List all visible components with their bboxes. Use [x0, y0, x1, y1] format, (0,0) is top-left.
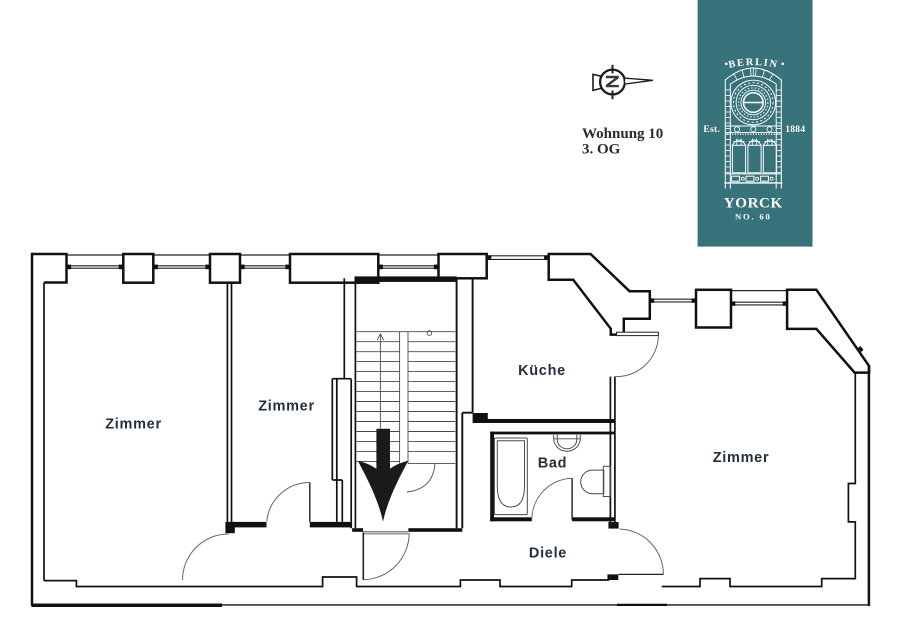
svg-text:Zimmer: Zimmer — [258, 399, 315, 415]
svg-text:3. OG: 3. OG — [582, 141, 621, 157]
svg-text:Est.: Est. — [703, 125, 720, 135]
svg-text:YORCK: YORCK — [724, 196, 783, 212]
svg-text:Zimmer: Zimmer — [105, 417, 162, 433]
svg-text:1884: 1884 — [785, 125, 805, 135]
svg-text:NO. 60: NO. 60 — [735, 212, 772, 222]
svg-text:Bad: Bad — [538, 456, 568, 472]
svg-text:Zimmer: Zimmer — [713, 450, 770, 466]
svg-text:Diele: Diele — [529, 546, 567, 562]
svg-text:Wohnung 10: Wohnung 10 — [582, 126, 663, 142]
svg-text:Küche: Küche — [518, 363, 566, 379]
